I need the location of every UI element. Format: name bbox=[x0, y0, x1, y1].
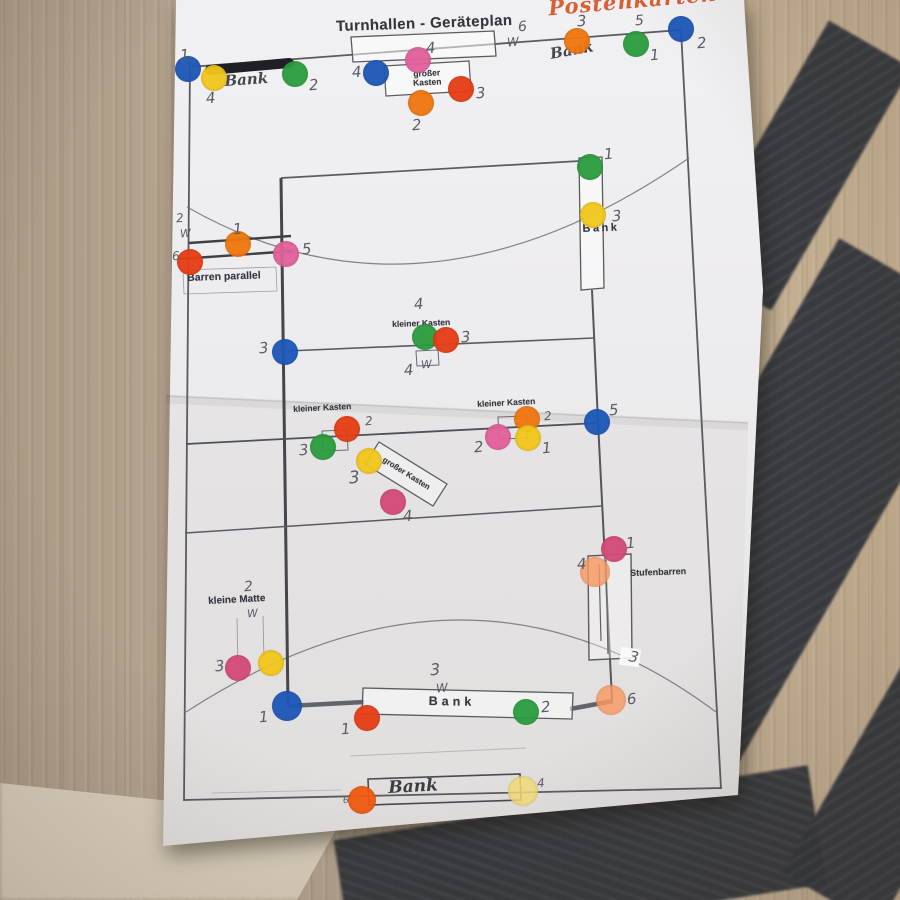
dot-number: 4 bbox=[205, 91, 216, 107]
dot-number: 2 bbox=[696, 36, 707, 52]
dot-number: 3 bbox=[611, 209, 622, 225]
dot-number: 2 bbox=[411, 118, 422, 134]
dot-number: 4 bbox=[536, 777, 545, 790]
hand-note: W bbox=[506, 36, 519, 49]
sticker-dot-green bbox=[623, 31, 649, 57]
sticker-dot-rose bbox=[225, 655, 251, 681]
dot-number: 6 bbox=[626, 692, 637, 708]
label-kleine-matte: kleine Matte bbox=[208, 594, 266, 607]
sticker-dot-pink bbox=[273, 241, 299, 267]
label-grosser-kasten-diagonal: großer Kasten bbox=[381, 456, 431, 492]
sticker-dot-blue bbox=[363, 60, 389, 86]
sticker-dot-pale_yellow bbox=[508, 776, 538, 806]
dot-number: 1 bbox=[340, 722, 351, 738]
dot-number: 3 bbox=[348, 470, 360, 488]
dot-number: 2 bbox=[540, 700, 551, 716]
hand-note: W bbox=[247, 608, 259, 620]
dot-number: 2 bbox=[364, 415, 373, 428]
dot-number: 5 bbox=[608, 403, 619, 419]
sticker-dot-yellow bbox=[258, 650, 284, 676]
dot-number: 4 bbox=[402, 509, 413, 525]
dot-number: 4 bbox=[425, 41, 436, 57]
sticker-dot-green bbox=[310, 434, 336, 460]
label-stufenbarren: Stufenbarren bbox=[630, 567, 686, 578]
label-bank-bottom: Bank bbox=[429, 695, 476, 709]
plan-annotations: Turnhallen - Geräteplan Postenkarten Ban… bbox=[0, 0, 900, 900]
dot-number: 3 bbox=[460, 330, 471, 346]
hand-note: W bbox=[435, 682, 448, 695]
dot-number: 2 bbox=[473, 440, 484, 456]
hand-note: 4 bbox=[413, 297, 424, 313]
dot-number: 1 bbox=[232, 222, 243, 238]
dot-number: 2 bbox=[308, 78, 319, 94]
dot-number: 1 bbox=[649, 48, 660, 64]
sticker-dot-blue bbox=[584, 409, 610, 435]
dot-number: 6 bbox=[343, 797, 349, 806]
sticker-dot-red_orange bbox=[348, 786, 376, 814]
hand-note: W bbox=[421, 359, 433, 371]
label-kleiner-kasten-links: kleiner Kasten bbox=[293, 402, 352, 414]
sticker-dot-blue bbox=[668, 16, 694, 42]
sticker-dot-yellow bbox=[580, 202, 606, 228]
dot-number: 4 bbox=[351, 65, 362, 81]
hand-note: 3 bbox=[429, 662, 441, 679]
dot-number: 1 bbox=[179, 48, 190, 64]
sticker-dot-blue bbox=[272, 691, 302, 721]
dot-number: 6 bbox=[171, 250, 180, 263]
hand-note: 6 bbox=[517, 20, 527, 35]
sticker-dot-green bbox=[577, 154, 603, 180]
dot-number: 3 bbox=[475, 86, 486, 102]
sticker-dot-rose bbox=[601, 536, 627, 562]
hand-note: 4 bbox=[403, 363, 414, 379]
dot-number: 3 bbox=[576, 14, 587, 30]
sticker-dot-red bbox=[433, 327, 459, 353]
sticker-dot-yellow bbox=[356, 448, 382, 474]
sticker-dot-salmon bbox=[596, 685, 626, 715]
hand-note: W bbox=[180, 228, 192, 240]
plan-title: Turnhallen - Geräteplan bbox=[336, 12, 513, 35]
label-bank-bottom-border: Bank bbox=[388, 777, 438, 797]
hand-note: 5 bbox=[634, 14, 644, 29]
dot-number: 5 bbox=[301, 242, 312, 258]
sticker-dot-red bbox=[177, 249, 203, 275]
dot-number: 1 bbox=[603, 147, 614, 163]
sticker-dot-red bbox=[354, 705, 380, 731]
sticker-dot-yellow bbox=[201, 65, 227, 91]
sticker-dot-pink bbox=[485, 424, 511, 450]
hand-note: 3 bbox=[628, 649, 640, 666]
dot-number: 3 bbox=[258, 341, 269, 357]
dot-number: 1 bbox=[258, 710, 269, 726]
label-bank-top-left: Bank bbox=[224, 71, 269, 90]
dot-number: 1 bbox=[625, 536, 636, 552]
corner-handwriting: Postenkarten bbox=[547, 0, 717, 20]
photo-of-gym-equipment-plan: Turnhallen - Geräteplan Postenkarten Ban… bbox=[0, 0, 900, 900]
sticker-dot-green bbox=[282, 61, 308, 87]
hand-note: 2 bbox=[243, 580, 253, 595]
sticker-dot-orange bbox=[408, 90, 434, 116]
sticker-dot-red bbox=[448, 76, 474, 102]
dot-number: 2 bbox=[543, 410, 552, 423]
sticker-dot-green bbox=[513, 699, 539, 725]
sticker-dot-orange bbox=[564, 28, 590, 54]
sticker-dot-red bbox=[334, 416, 360, 442]
dot-number: 4 bbox=[576, 557, 587, 573]
dot-number: 1 bbox=[541, 441, 552, 457]
hand-note: 2 bbox=[175, 212, 184, 225]
sticker-dot-yellow bbox=[515, 425, 541, 451]
dot-number: 3 bbox=[214, 659, 225, 675]
label-barren-parallel: Barren parallel bbox=[187, 270, 261, 284]
sticker-dot-blue bbox=[272, 339, 298, 365]
dot-number: 3 bbox=[298, 443, 309, 459]
